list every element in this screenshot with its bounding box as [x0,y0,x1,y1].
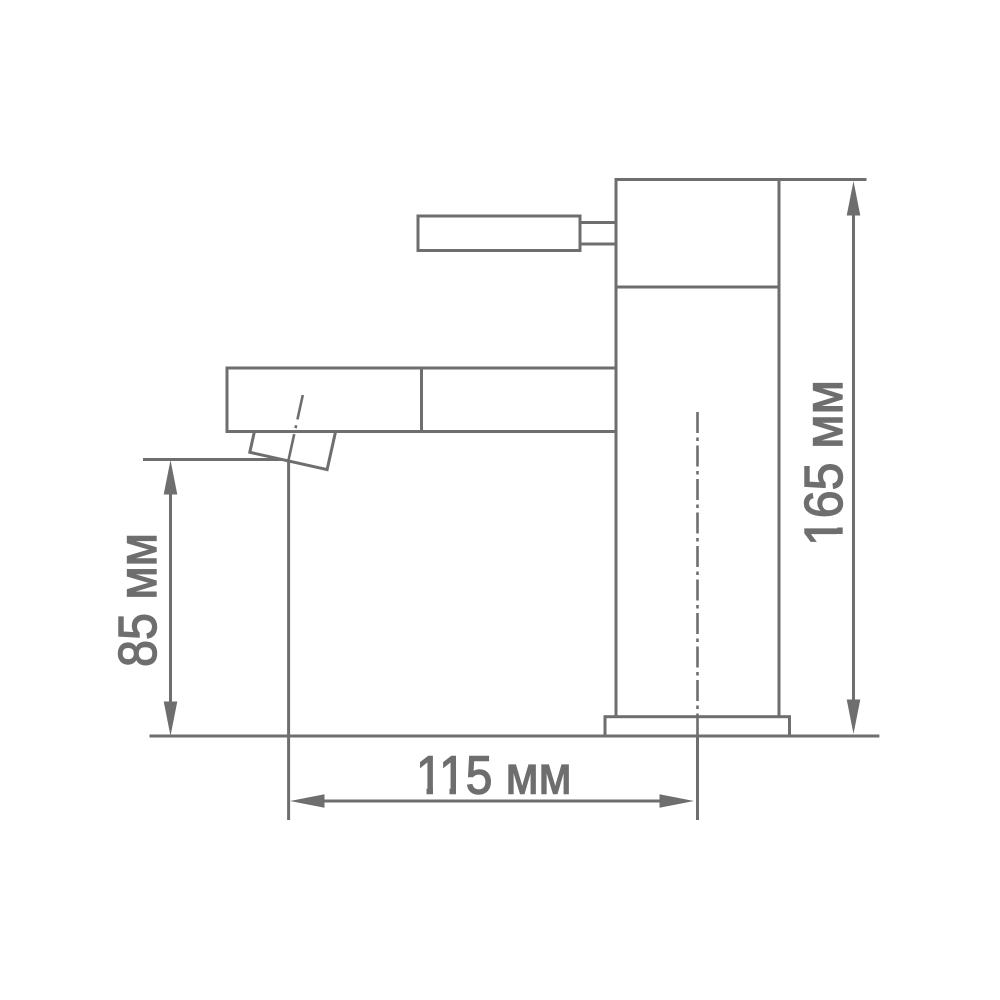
svg-text:85 мм: 85 мм [108,533,168,667]
svg-text:115 мм: 115 мм [416,746,572,806]
